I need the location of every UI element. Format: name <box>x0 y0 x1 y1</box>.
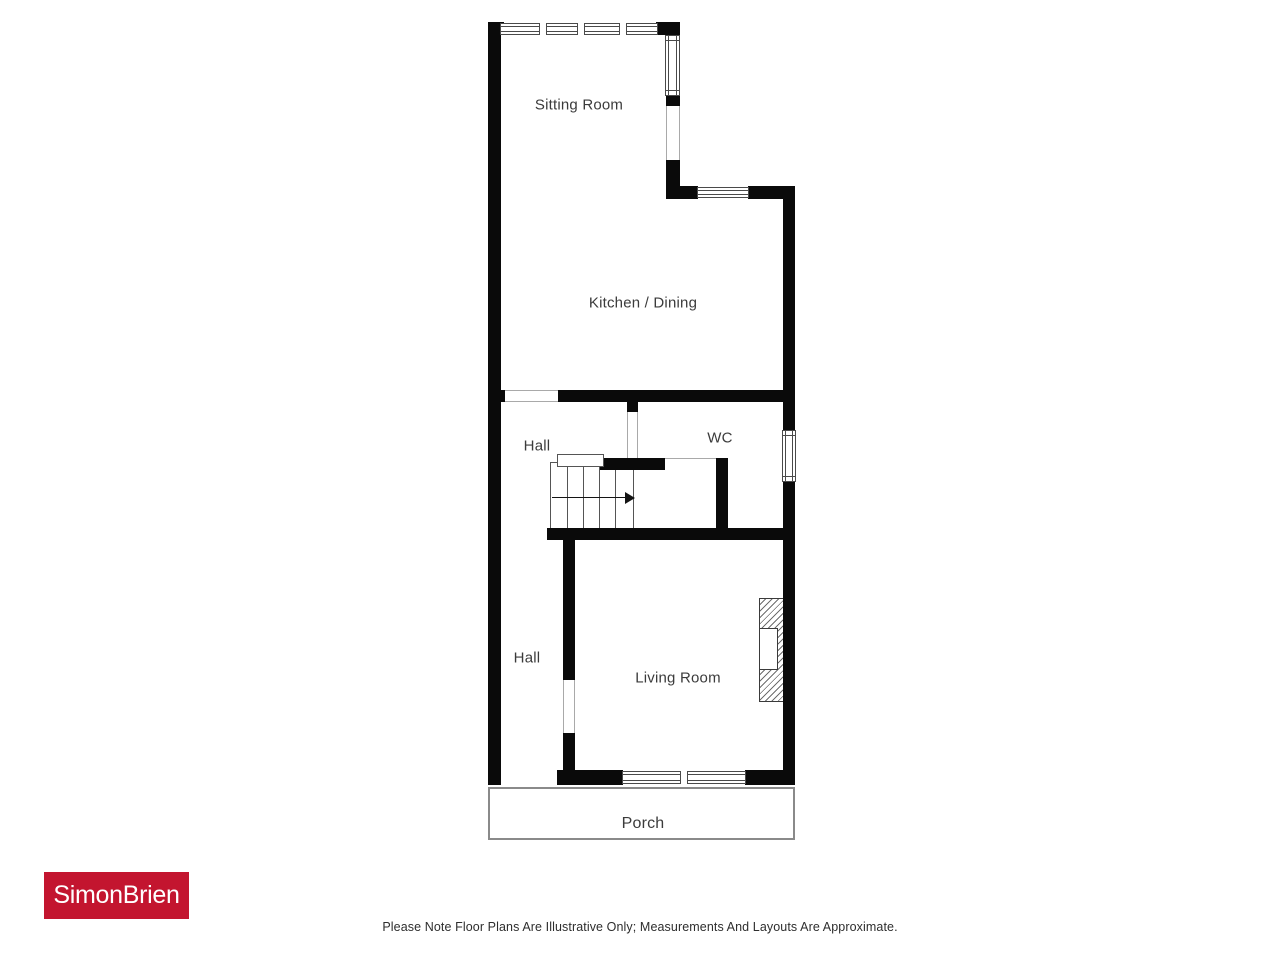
wall-hall-divider-left <box>488 390 505 402</box>
wall-east-lower <box>783 480 795 785</box>
window-cap <box>666 40 679 41</box>
wall-hall-divider-right <box>558 390 795 402</box>
stairs-direction-arrow-icon <box>552 497 627 498</box>
window-sitting-north <box>500 23 658 35</box>
door-opening-hall-kitchen <box>505 390 558 402</box>
room-label-hall-upper: Hall <box>524 438 551 455</box>
disclaimer-text: Please Note Floor Plans Are Illustrative… <box>0 920 1280 934</box>
window-kitchen-north <box>697 187 749 198</box>
simonbrien-logo: SimonBrien <box>44 872 189 919</box>
wall-south-left <box>557 770 623 785</box>
fireplace-opening <box>759 628 778 670</box>
window-mullion <box>539 23 547 35</box>
opening-sitting-kitchen <box>666 106 680 160</box>
wall-stair-bottom <box>547 528 795 540</box>
room-label-sitting-room: Sitting Room <box>535 97 623 114</box>
window-living-south <box>622 771 746 784</box>
wall-north-corner-right <box>656 22 680 35</box>
stair-tread-line <box>599 463 600 529</box>
window-glazing-lines <box>785 431 793 481</box>
logo-text: SimonBrien <box>53 881 179 910</box>
stair-tread-line <box>583 463 584 529</box>
window-sitting-east <box>665 35 680 96</box>
window-wc-east <box>782 430 796 482</box>
wall-hall-living-upper <box>563 533 575 680</box>
door-opening-hall-wc <box>627 412 638 458</box>
window-cap <box>783 476 795 477</box>
stair-tread-line <box>615 463 616 529</box>
stair-landing <box>557 454 604 467</box>
wall-kitchen-north-left <box>666 186 698 199</box>
window-glazing-lines <box>668 36 677 95</box>
room-label-hall-lower: Hall <box>514 650 541 667</box>
wall-west-exterior <box>488 22 501 785</box>
door-opening-hall-living <box>563 680 575 733</box>
window-cap <box>666 90 679 91</box>
wall-stair-top <box>600 458 665 470</box>
wall-wc-stub-top <box>627 396 638 412</box>
stair-tread-line <box>567 463 568 529</box>
room-label-kitchen-dining: Kitchen / Dining <box>589 295 697 312</box>
window-mullion <box>619 23 627 35</box>
staircase <box>550 462 634 530</box>
wall-south-right <box>745 770 795 785</box>
floorplan-page: Sitting Room Kitchen / Dining Hall WC Ha… <box>0 0 1280 960</box>
room-label-wc: WC <box>707 430 732 447</box>
window-glazing-lines <box>698 190 748 195</box>
window-mullion <box>680 771 688 784</box>
room-label-porch: Porch <box>622 815 665 833</box>
room-label-living-room: Living Room <box>635 670 721 687</box>
window-mullion <box>577 23 585 35</box>
stairs-arrowhead-icon <box>625 492 635 504</box>
window-cap <box>783 435 795 436</box>
door-opening-wc <box>665 458 716 470</box>
